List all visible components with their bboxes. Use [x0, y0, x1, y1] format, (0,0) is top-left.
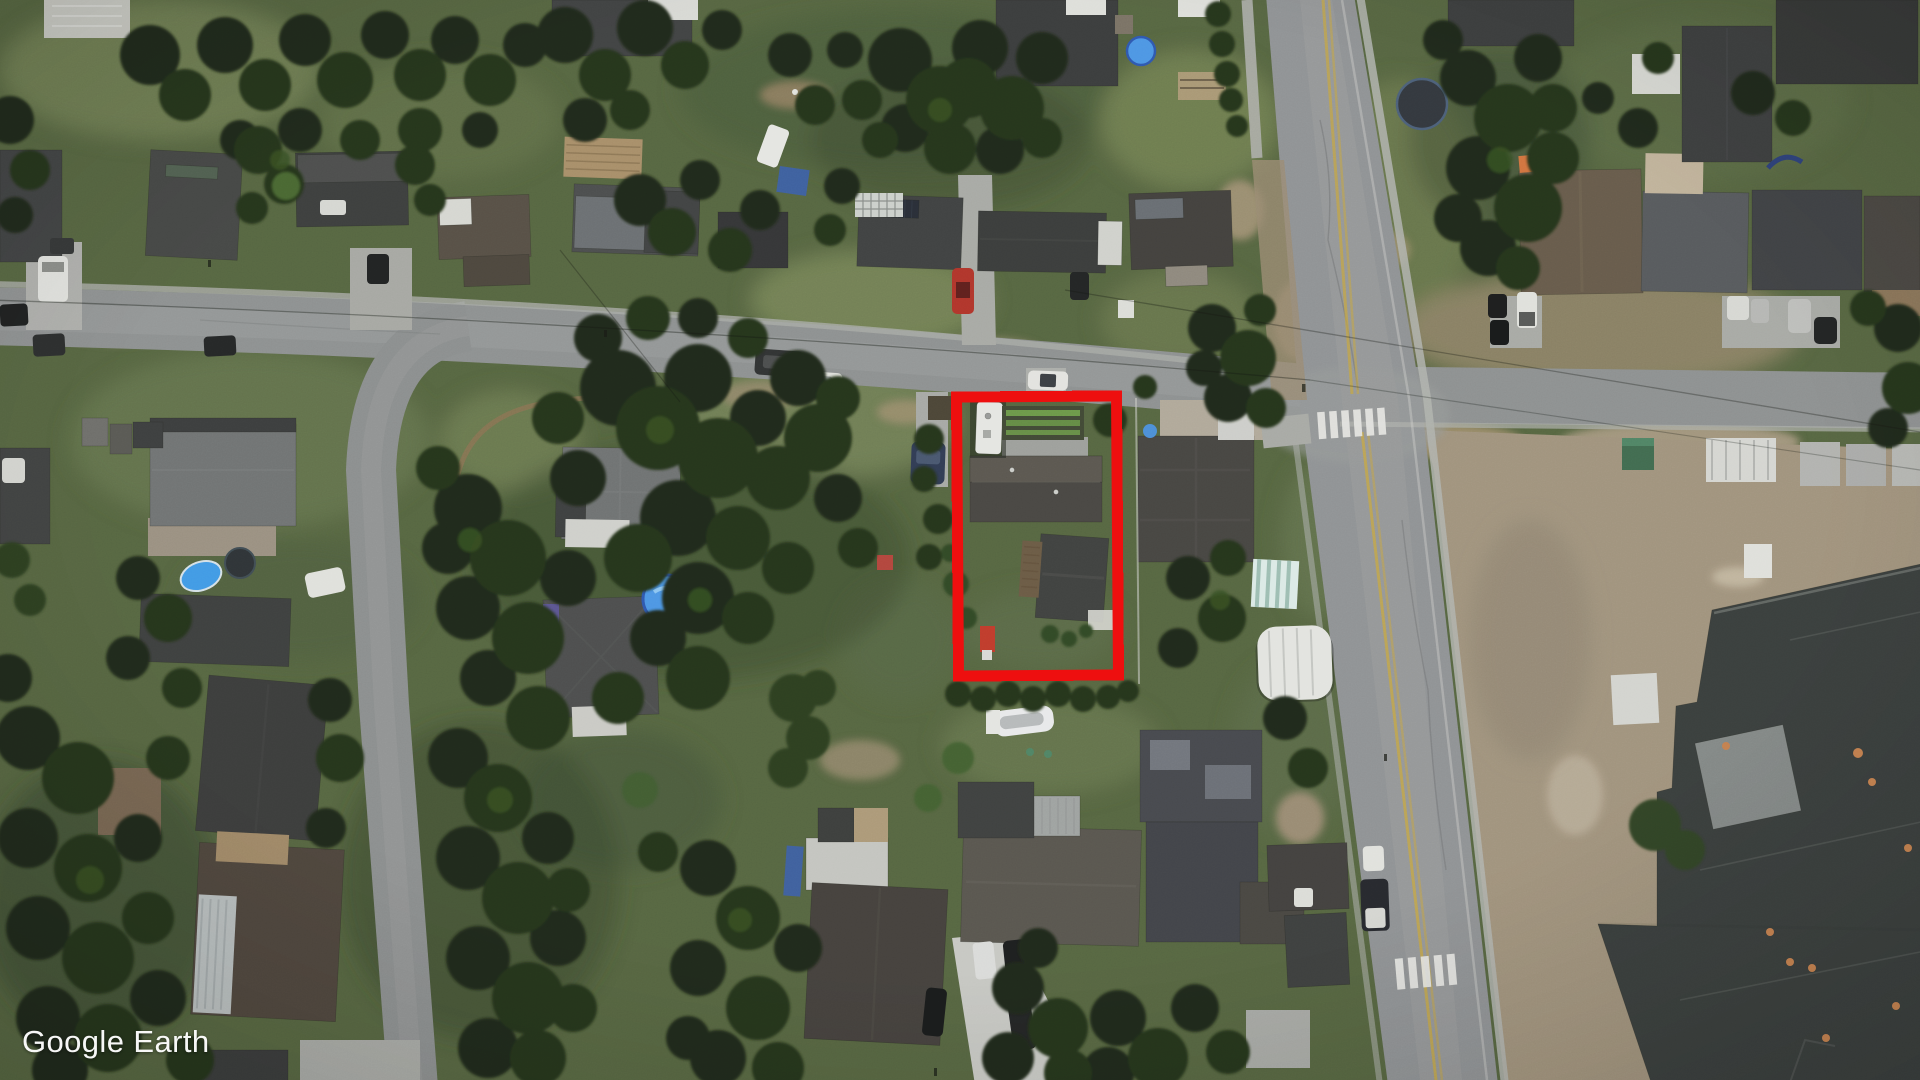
google-earth-watermark: Google Earth — [22, 1024, 209, 1060]
property-highlight-rectangle — [951, 390, 1124, 681]
google-earth-viewport[interactable]: Google Earth — [0, 0, 1920, 1080]
